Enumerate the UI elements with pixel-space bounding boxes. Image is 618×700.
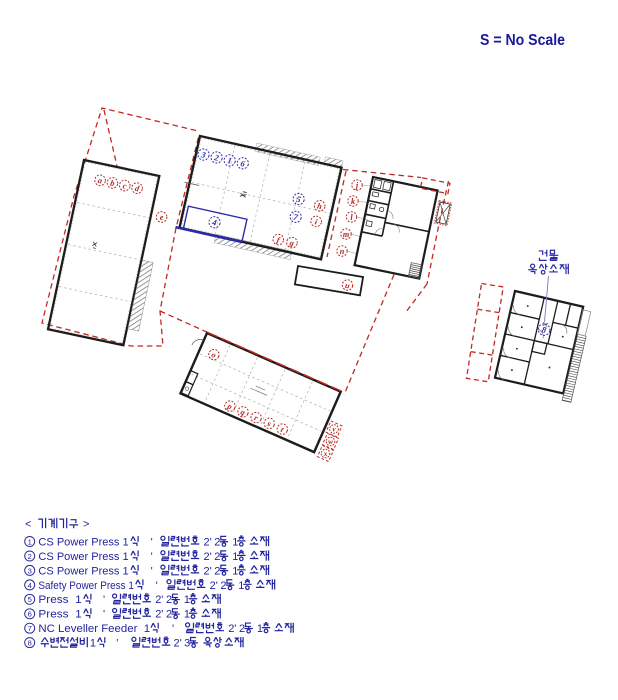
- svg-text:Safety Power Press 1: Safety Power Press 1: [38, 580, 133, 592]
- svg-text:': ': [103, 609, 105, 621]
- svg-text:5: 5: [28, 595, 32, 604]
- svg-text:1: 1: [238, 580, 244, 592]
- svg-text:>: >: [83, 519, 89, 531]
- svg-text:6: 6: [28, 610, 32, 619]
- svg-text:2': 2': [228, 623, 236, 635]
- svg-text:2: 2: [214, 536, 220, 548]
- svg-text:': ': [151, 536, 153, 548]
- svg-text:w: w: [328, 438, 333, 446]
- svg-text:': ': [172, 623, 174, 635]
- svg-text:2': 2': [155, 594, 163, 606]
- svg-text:2': 2': [155, 609, 163, 621]
- svg-text:S = No Scale: S = No Scale: [480, 32, 565, 49]
- svg-text:2: 2: [239, 623, 245, 635]
- svg-text:1: 1: [257, 623, 263, 635]
- svg-text:2': 2': [210, 580, 218, 592]
- svg-text:m: m: [343, 230, 349, 239]
- svg-text:1: 1: [184, 609, 190, 621]
- svg-text:2': 2': [204, 551, 212, 563]
- svg-text:': ': [151, 551, 153, 563]
- svg-text:e: e: [160, 213, 164, 222]
- svg-text:Press 1: Press 1: [38, 609, 81, 621]
- svg-text:CS Power Press 1: CS Power Press 1: [38, 551, 128, 563]
- svg-text:1: 1: [232, 551, 238, 563]
- svg-text:CS Power Press 1: CS Power Press 1: [38, 536, 128, 548]
- svg-text:n: n: [340, 247, 345, 256]
- svg-text:Press 1: Press 1: [38, 594, 81, 606]
- svg-text:': ': [103, 594, 105, 606]
- svg-text:1: 1: [28, 537, 32, 546]
- svg-text:2: 2: [214, 565, 220, 577]
- svg-text:': ': [156, 580, 158, 592]
- svg-text:': ': [151, 565, 153, 577]
- svg-text:x: x: [323, 450, 328, 458]
- svg-text:2: 2: [166, 609, 172, 621]
- svg-text:2: 2: [220, 580, 226, 592]
- svg-text:2: 2: [166, 594, 172, 606]
- svg-text:2': 2': [174, 638, 182, 650]
- svg-text:': ': [116, 638, 118, 650]
- svg-text:<: <: [25, 519, 31, 531]
- svg-text:1: 1: [232, 536, 238, 548]
- svg-text:2': 2': [204, 565, 212, 577]
- svg-text:CS Power Press 1: CS Power Press 1: [38, 565, 128, 577]
- svg-text:4: 4: [28, 581, 32, 590]
- svg-text:NC Leveller Feeder 1: NC Leveller Feeder 1: [38, 623, 150, 635]
- svg-text:2: 2: [28, 552, 32, 561]
- svg-text:8: 8: [28, 639, 32, 648]
- svg-text:3: 3: [28, 566, 32, 575]
- svg-text:1: 1: [232, 565, 238, 577]
- svg-text:1: 1: [90, 638, 96, 650]
- svg-text:3: 3: [184, 638, 190, 650]
- svg-text:2': 2': [204, 536, 212, 548]
- svg-text:1: 1: [184, 594, 190, 606]
- svg-text:7: 7: [28, 624, 32, 633]
- svg-text:2: 2: [214, 551, 220, 563]
